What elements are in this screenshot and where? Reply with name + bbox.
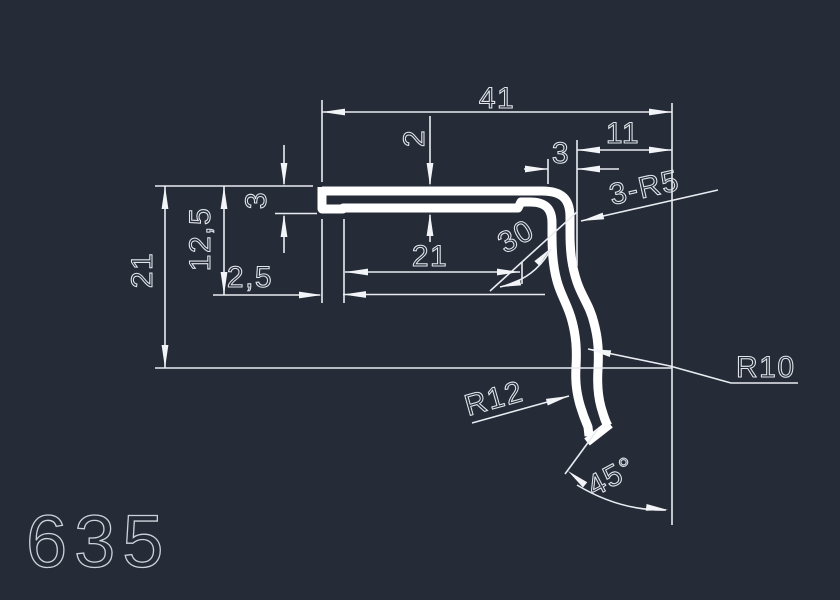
- arrowhead: [162, 186, 169, 209]
- arrowhead: [580, 213, 604, 225]
- dim-text-inner-radius: R12: [461, 375, 527, 423]
- dim-text-outer-radius: R10: [736, 351, 796, 384]
- dim-text-lip-height: 3: [240, 191, 273, 209]
- arrowhead: [322, 109, 345, 116]
- dim-text-overall-width: 41: [479, 82, 515, 115]
- arrowhead: [221, 186, 228, 209]
- arrowhead: [577, 147, 600, 154]
- arrowhead: [649, 147, 672, 154]
- arrowhead: [281, 163, 288, 186]
- arrowhead: [649, 109, 672, 116]
- part-number-label: 635: [26, 500, 170, 583]
- dim-text-wall-thickness: 2: [398, 129, 431, 147]
- arrowhead: [427, 213, 434, 236]
- arrowhead: [427, 163, 434, 186]
- arrowhead: [525, 166, 548, 173]
- arrowhead: [162, 345, 169, 368]
- dimension-lines: [155, 100, 798, 525]
- arrowhead: [345, 269, 368, 276]
- dim-text-corner-offset: 3: [552, 137, 570, 170]
- cad-application-window: 41 2 11 3 3-R5 21 12,5 3 2,5 21 30 R10 R…: [0, 0, 840, 600]
- dimension-arrowheads: [162, 109, 672, 514]
- drawing-canvas[interactable]: 41 2 11 3 3-R5 21 12,5 3 2,5 21 30 R10 R…: [0, 0, 840, 600]
- arrowhead: [499, 279, 521, 290]
- dim-text-bend-angle: 30: [492, 213, 540, 260]
- arrowhead: [281, 214, 288, 237]
- dim-text-inner-width: 21: [412, 240, 448, 273]
- arrowhead: [646, 504, 669, 513]
- arrowhead: [343, 291, 366, 298]
- dim-text-overall-height: 21: [126, 252, 159, 288]
- dimension-labels: 41 2 11 3 3-R5 21 12,5 3 2,5 21 30 R10 R…: [126, 82, 796, 503]
- dim-text-lip-drop: 12,5: [184, 207, 217, 271]
- arrowhead: [299, 292, 322, 299]
- dim-text-end-cut-angle: 45°: [582, 451, 642, 504]
- arrowhead: [546, 393, 570, 406]
- dim-text-lip-width: 2,5: [227, 261, 273, 294]
- arrowhead: [577, 166, 600, 173]
- dim-text-top-right-offset: 11: [606, 117, 640, 150]
